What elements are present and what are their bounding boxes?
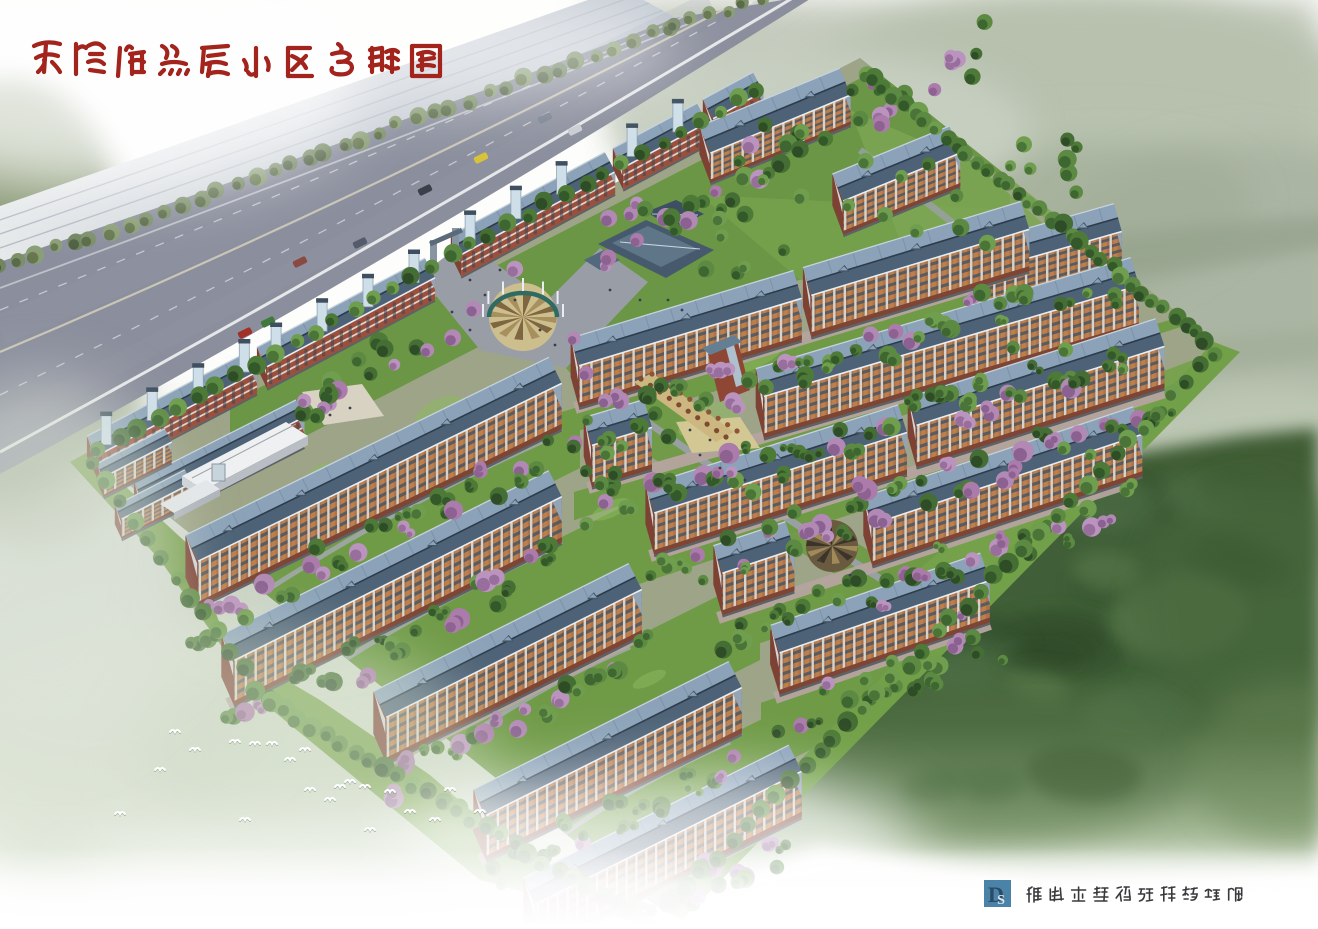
svg-text:S: S [997, 893, 1005, 908]
